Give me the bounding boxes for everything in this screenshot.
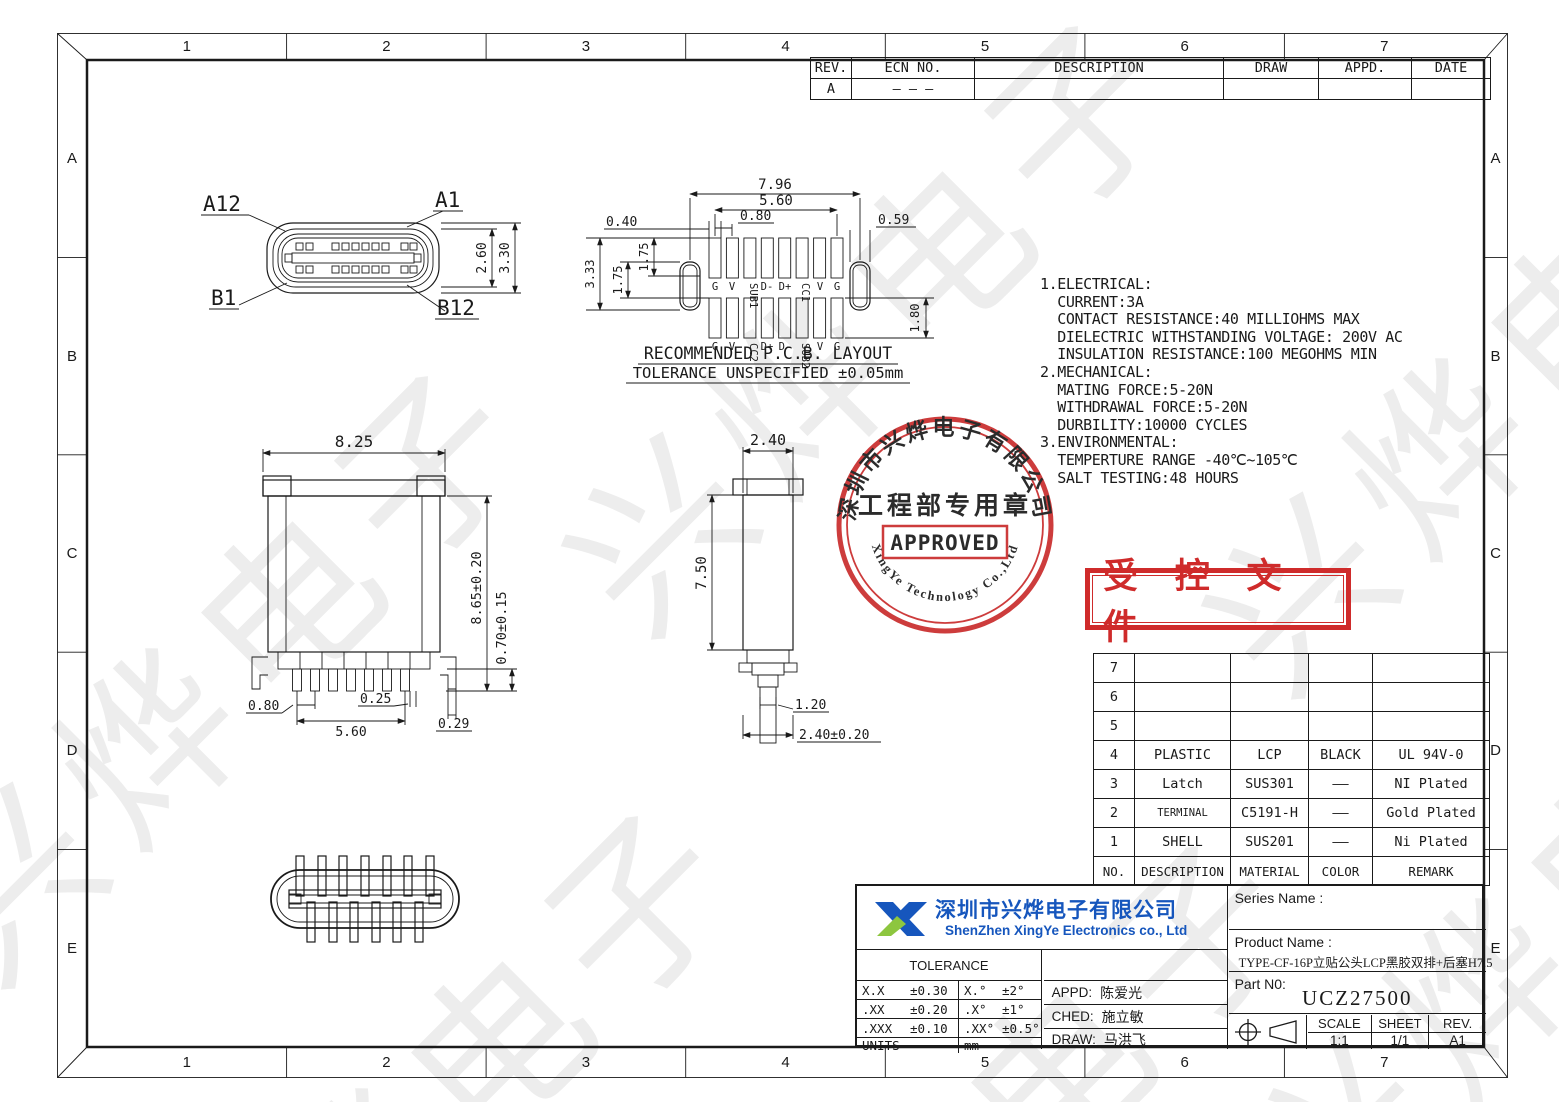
approved-label: APPROVED: [890, 531, 999, 555]
bom-no: 5: [1094, 712, 1135, 741]
part-number-cell: Part N0: UCZ27500: [1229, 974, 1486, 1014]
col-label: 6: [1085, 1047, 1285, 1077]
bom-no: 6: [1094, 683, 1135, 712]
col-label: 2: [287, 1047, 487, 1077]
bom-color: ——: [1309, 770, 1373, 799]
rev-label: REV.: [1429, 1015, 1486, 1031]
tol-value: ±0.20: [910, 1000, 958, 1018]
bom-color: [1309, 654, 1373, 683]
connector-bottom-view: [255, 838, 475, 962]
dim-0-29: 0.29: [438, 717, 469, 732]
tol-value: ±0.30: [910, 981, 958, 999]
svg-text:D-: D-: [761, 281, 774, 293]
units-label: UNITS: [857, 1038, 958, 1053]
pin-label-a12: A12: [203, 192, 241, 216]
mount-foot-left: [252, 657, 268, 689]
mount-foot-right: [440, 657, 456, 689]
rev-value: A1: [1429, 1033, 1486, 1049]
note-line: TEMPERTURE RANGE -40℃~105℃: [1040, 452, 1480, 470]
bom-desc: [1135, 712, 1231, 741]
bom-material: [1231, 712, 1309, 741]
svg-text:V: V: [817, 281, 824, 293]
stamp-department: 工程部专用章: [858, 491, 1032, 520]
tol-label: X.°: [958, 981, 1002, 999]
draw-header: DRAW: [1224, 58, 1319, 79]
dim-7-96: 7.96: [758, 177, 792, 193]
bom-no: 1: [1094, 828, 1135, 857]
bom-no: 3: [1094, 770, 1135, 799]
note-line: MATING FORCE:5-20N: [1040, 382, 1480, 400]
tol-value: ±2°: [1002, 981, 1041, 999]
row-label: A: [57, 60, 87, 257]
bom-color: ——: [1309, 828, 1373, 857]
dim-1-20: 1.20: [795, 698, 826, 713]
sheet-label: SHEET: [1372, 1015, 1430, 1031]
revision-table: REV. ECN NO. DESCRIPTION DRAW APPD. DATE…: [810, 57, 1491, 100]
row-label: C: [1484, 455, 1507, 652]
dim-2-40-tol: 2.40±0.20: [799, 728, 869, 743]
row-label: D: [57, 652, 87, 849]
sheet-value: 1/1: [1372, 1033, 1430, 1049]
appd-label: APPD:: [1052, 985, 1093, 1000]
appd-header: APPD.: [1319, 58, 1412, 79]
dim-5-60-span: 5.60: [335, 725, 366, 740]
bom-material: C5191-H: [1231, 799, 1309, 828]
dim-7-50: 7.50: [694, 556, 710, 590]
controlled-document-text: 受 控 文 件: [1092, 575, 1344, 623]
dim-0-25: 0.25: [360, 692, 391, 707]
dim-0-40: 0.40: [606, 215, 637, 230]
col-label: 3: [486, 1047, 686, 1077]
bom-remark: [1373, 712, 1490, 741]
pcb-tolerance-note: TOLERANCE UNSPECIFIED ±0.05mm: [633, 364, 904, 382]
connector-body: [268, 496, 440, 652]
body-profile: [743, 495, 793, 650]
product-label: Product Name :: [1235, 934, 1332, 950]
note-line: SALT TESTING:48 HOURS: [1040, 470, 1480, 488]
ched-label: CHED:: [1052, 1009, 1094, 1024]
bom-remark: [1373, 683, 1490, 712]
pcb-layout-view: 7.96 5.60 0.80 0.40 0.59 3.33 1.75 1.75 …: [578, 176, 958, 388]
note-line: DIELECTRIC WITHSTANDING VOLTAGE: 200V AC: [1040, 329, 1480, 347]
product-name-cell: Product Name : TYPE-CF-16P立贴公头LCP黑胶双排+后塞…: [1229, 932, 1486, 972]
bom-color: [1309, 683, 1373, 712]
rev-header: REV.: [811, 58, 852, 79]
center-bar: [289, 890, 441, 908]
description-value: [975, 79, 1224, 100]
bom-remark: Ni Plated: [1373, 828, 1490, 857]
tol-label: X.X: [857, 981, 910, 999]
draw-value: [1224, 79, 1319, 100]
bom-color: BLACK: [1309, 741, 1373, 770]
description-header: DESCRIPTION: [975, 58, 1224, 79]
bom-desc: [1135, 683, 1231, 712]
bom-material: SUS201: [1231, 828, 1309, 857]
bom-no: 7: [1094, 654, 1135, 683]
frame-top-columns: 1234567: [87, 33, 1484, 60]
bom-desc: SHELL: [1135, 828, 1231, 857]
bom-color: ——: [1309, 799, 1373, 828]
draw-label: DRAW:: [1052, 1032, 1096, 1047]
bom-header-color: COLOR: [1309, 857, 1373, 886]
spec-notes: 1.ELECTRICAL: CURRENT:3A CONTACT RESISTA…: [1040, 276, 1480, 487]
dim-1-80: 1.80: [908, 304, 922, 333]
bom-material: SUS301: [1231, 770, 1309, 799]
tol-value: ±1°: [1002, 1000, 1041, 1018]
col-label: 1: [87, 33, 287, 60]
drawing-sheet: 兴烨电子 兴烨电子 兴烨电子 兴烨电子 兴烨电子 兴烨电子 1234567 12…: [0, 0, 1559, 1102]
ecn-header: ECN NO.: [852, 58, 975, 79]
pin-label-b12: B12: [437, 296, 475, 320]
dim-8-25: 8.25: [335, 432, 374, 451]
bom-material: [1231, 654, 1309, 683]
tol-value: ±0.5°: [1002, 1019, 1041, 1037]
controlled-document-stamp: 受 控 文 件: [1085, 568, 1351, 630]
pin-label-a1: A1: [435, 188, 460, 212]
draw-name: 马洪飞: [1104, 1030, 1146, 1050]
bom-no: 4: [1094, 741, 1135, 770]
row-label: B: [1484, 257, 1507, 454]
row-label: B: [57, 257, 87, 454]
col-label: 7: [1284, 33, 1484, 60]
units-value: mm: [958, 1038, 1041, 1053]
company-logo: [869, 894, 931, 942]
series-name-cell: Series Name :: [1229, 886, 1486, 930]
date-value: [1412, 79, 1491, 100]
connector-body-view: 8.25 8.65±0.20 0.70±0.15 0.80 5.60 0.25 …: [240, 423, 570, 758]
ecn-value: — — —: [852, 79, 975, 100]
dim-8-65: 8.65±0.20: [469, 551, 485, 624]
svg-text:V: V: [729, 281, 736, 293]
frame-bottom-columns: 1234567: [87, 1047, 1484, 1077]
col-label: 6: [1085, 33, 1285, 60]
bom-table: 7 6 5 4PLASTICLCPBLACKUL 94V-0 3LatchSUS…: [1093, 653, 1490, 886]
col-label: 7: [1284, 1047, 1484, 1077]
row-label: C: [57, 455, 87, 652]
dim-3-30: 3.30: [498, 242, 513, 273]
col-label: 5: [885, 33, 1085, 60]
dim-0-59: 0.59: [878, 213, 909, 228]
note-line: CURRENT:3A: [1040, 294, 1480, 312]
date-header: DATE: [1412, 58, 1491, 79]
tolerance-title: TOLERANCE: [857, 950, 1041, 981]
pcb-caption: RECOMMENDED P.C.B. LAYOUT: [644, 344, 892, 363]
appd-value: [1319, 79, 1412, 100]
bom-header-no: NO.: [1094, 857, 1135, 886]
company-name-en: ShenZhen XingYe Electronics co., Ltd: [945, 923, 1187, 938]
signature-block: APPD: 陈爱光 CHED: 施立敏 DRAW: 马洪飞: [1044, 950, 1227, 1049]
dim-2-40: 2.40: [750, 431, 786, 449]
bom-desc: [1135, 654, 1231, 683]
bom-desc: TERMINAL: [1135, 799, 1231, 828]
projection-symbol-cell: [1229, 1015, 1307, 1049]
svg-text:CC1: CC1: [799, 283, 811, 302]
shell-bottom-outline: [271, 870, 459, 928]
tol-label: .XX°: [958, 1019, 1002, 1037]
dim-1-75-b: 1.75: [637, 243, 651, 272]
dim-0-80: 0.80: [740, 209, 771, 224]
appd-name: 陈爱光: [1100, 983, 1142, 1003]
dim-2-60: 2.60: [475, 242, 490, 273]
bom-material: [1231, 683, 1309, 712]
dim-3-33: 3.33: [583, 260, 597, 289]
svg-text:D+: D+: [779, 281, 792, 293]
row-label: E: [57, 850, 87, 1047]
scale-label: SCALE: [1308, 1015, 1371, 1031]
bom-remark: NI Plated: [1373, 770, 1490, 799]
bom-desc: Latch: [1135, 770, 1231, 799]
bom-remark: UL 94V-0: [1373, 741, 1490, 770]
col-label: 1: [87, 1047, 287, 1077]
note-line: 3.ENVIRONMENTAL:: [1040, 434, 1480, 452]
note-line: WITHDRAWAL FORCE:5-20N: [1040, 399, 1480, 417]
tolerance-table: TOLERANCE X.X ±0.30 X.° ±2° .XX ±0.20 .X…: [857, 950, 1042, 1049]
rev-value: A: [811, 79, 852, 100]
dim-0-80-pitch: 0.80: [248, 699, 279, 714]
dim-1-75-a: 1.75: [611, 266, 625, 295]
note-line: 2.MECHANICAL:: [1040, 364, 1480, 382]
bom-header-material: MATERIAL: [1231, 857, 1309, 886]
bom-header-remark: REMARK: [1373, 857, 1490, 886]
bom-remark: Gold Plated: [1373, 799, 1490, 828]
tol-label: .X°: [958, 1000, 1002, 1018]
scale-value: 1:1: [1308, 1033, 1371, 1049]
col-label: 4: [686, 33, 886, 60]
contact-pins: [285, 243, 421, 273]
note-line: 1.ELECTRICAL:: [1040, 276, 1480, 294]
dim-5-60: 5.60: [759, 193, 793, 209]
pin-label-b1: B1: [211, 286, 236, 310]
col-label: 2: [287, 33, 487, 60]
approval-stamp: 深圳市兴烨电子有限公司 XingYe Technology Co.,Ltd 工程…: [828, 408, 1062, 642]
svg-text:G: G: [712, 281, 718, 293]
tol-label: .XXX: [857, 1019, 910, 1037]
title-block: 深圳市兴烨电子有限公司 ShenZhen XingYe Electronics …: [855, 884, 1484, 1047]
product-value: TYPE-CF-16P立贴公头LCP黑胶双排+后塞H7.5: [1239, 952, 1493, 971]
series-label: Series Name :: [1235, 890, 1324, 906]
solder-legs: [293, 669, 410, 691]
company-header: 深圳市兴烨电子有限公司 ShenZhen XingYe Electronics …: [857, 886, 1227, 950]
svg-text:G: G: [834, 281, 840, 293]
frame-right-rows: ABCDE: [1484, 60, 1507, 1047]
third-angle-projection-icon: [1232, 1017, 1302, 1047]
note-line: INSULATION RESISTANCE:100 MEGOHMS MIN: [1040, 346, 1480, 364]
dim-0-70: 0.70±0.15: [494, 591, 510, 664]
company-name-cn: 深圳市兴烨电子有限公司: [935, 894, 1177, 924]
col-label: 4: [686, 1047, 886, 1077]
connector-front-view: A12 A1 B1 B12 2.60 3.30: [195, 183, 525, 325]
ched-name: 施立敏: [1102, 1007, 1144, 1027]
note-line: CONTACT RESISTANCE:40 MILLIOHMS MAX: [1040, 311, 1480, 329]
bom-color: [1309, 712, 1373, 741]
bom-remark: [1373, 654, 1490, 683]
col-label: 3: [486, 33, 686, 60]
bom-material: LCP: [1231, 741, 1309, 770]
shell-outline: [267, 223, 439, 293]
bom-no: 2: [1094, 799, 1135, 828]
note-line: DURBILITY:10000 CYCLES: [1040, 417, 1480, 435]
bom-desc: PLASTIC: [1135, 741, 1231, 770]
tol-value: ±0.10: [910, 1019, 958, 1037]
tol-label: .XX: [857, 1000, 910, 1018]
tongue: [292, 253, 414, 263]
frame-left-rows: ABCDE: [57, 60, 87, 1047]
svg-text:SUB1: SUB1: [747, 283, 759, 308]
part-number: UCZ27500: [1229, 986, 1486, 1011]
bom-header-desc: DESCRIPTION: [1135, 857, 1231, 886]
